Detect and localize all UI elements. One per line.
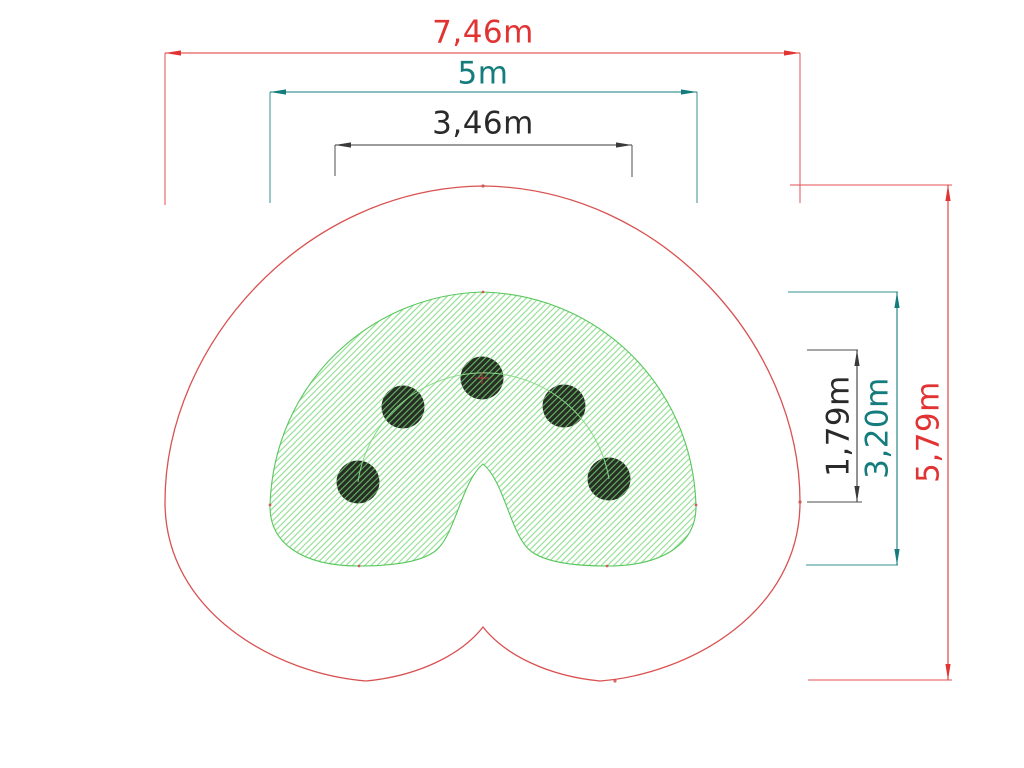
dim-label-impact-height: 3,20m [863, 377, 894, 479]
dim-label-posts-width: 3,46m [432, 109, 534, 140]
dim-label-posts-height: 1,79m [824, 375, 855, 477]
dim-line-posts-width [335, 142, 632, 147]
drawing-canvas: 7,46m 5m 3,46m 1,79m 3,20m 5,79m [0, 0, 1024, 768]
equipment-zone-hatch [270, 292, 696, 566]
dim-label-overall-width: 7,46m [432, 18, 534, 49]
dim-label-overall-height: 5,79m [914, 381, 945, 483]
dim-label-impact-width: 5m [458, 59, 509, 90]
